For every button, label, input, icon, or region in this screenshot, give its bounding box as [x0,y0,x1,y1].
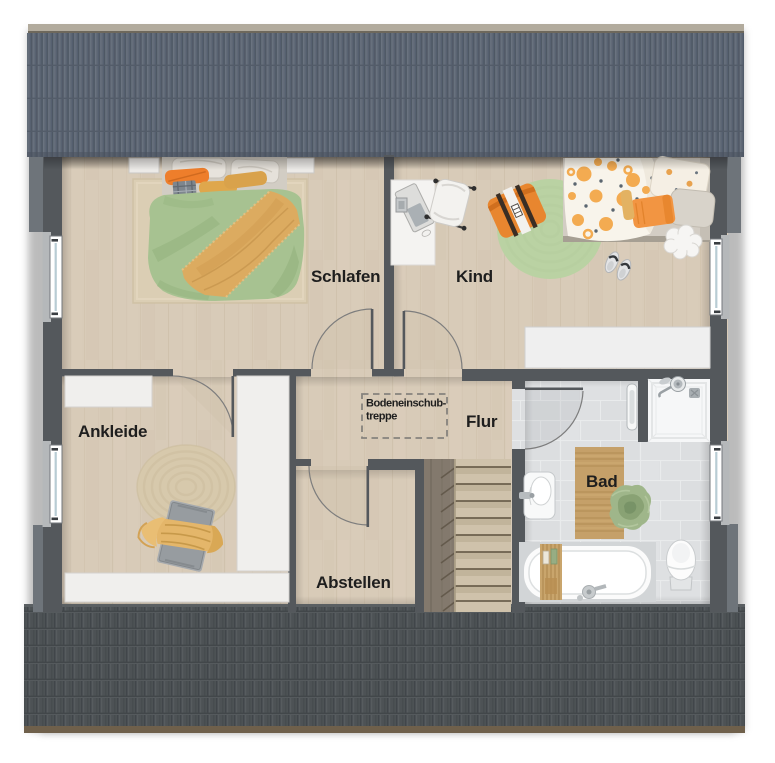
svg-text:Flur: Flur [466,412,498,431]
svg-text:Ankleide: Ankleide [78,422,147,441]
svg-text:Schlafen: Schlafen [311,267,380,286]
svg-text:Bodeneinschub-: Bodeneinschub- [366,398,447,410]
svg-text:Kind: Kind [456,267,493,286]
svg-text:treppe: treppe [366,411,397,423]
svg-text:Bad: Bad [586,472,618,491]
svg-text:Abstellen: Abstellen [316,573,391,592]
